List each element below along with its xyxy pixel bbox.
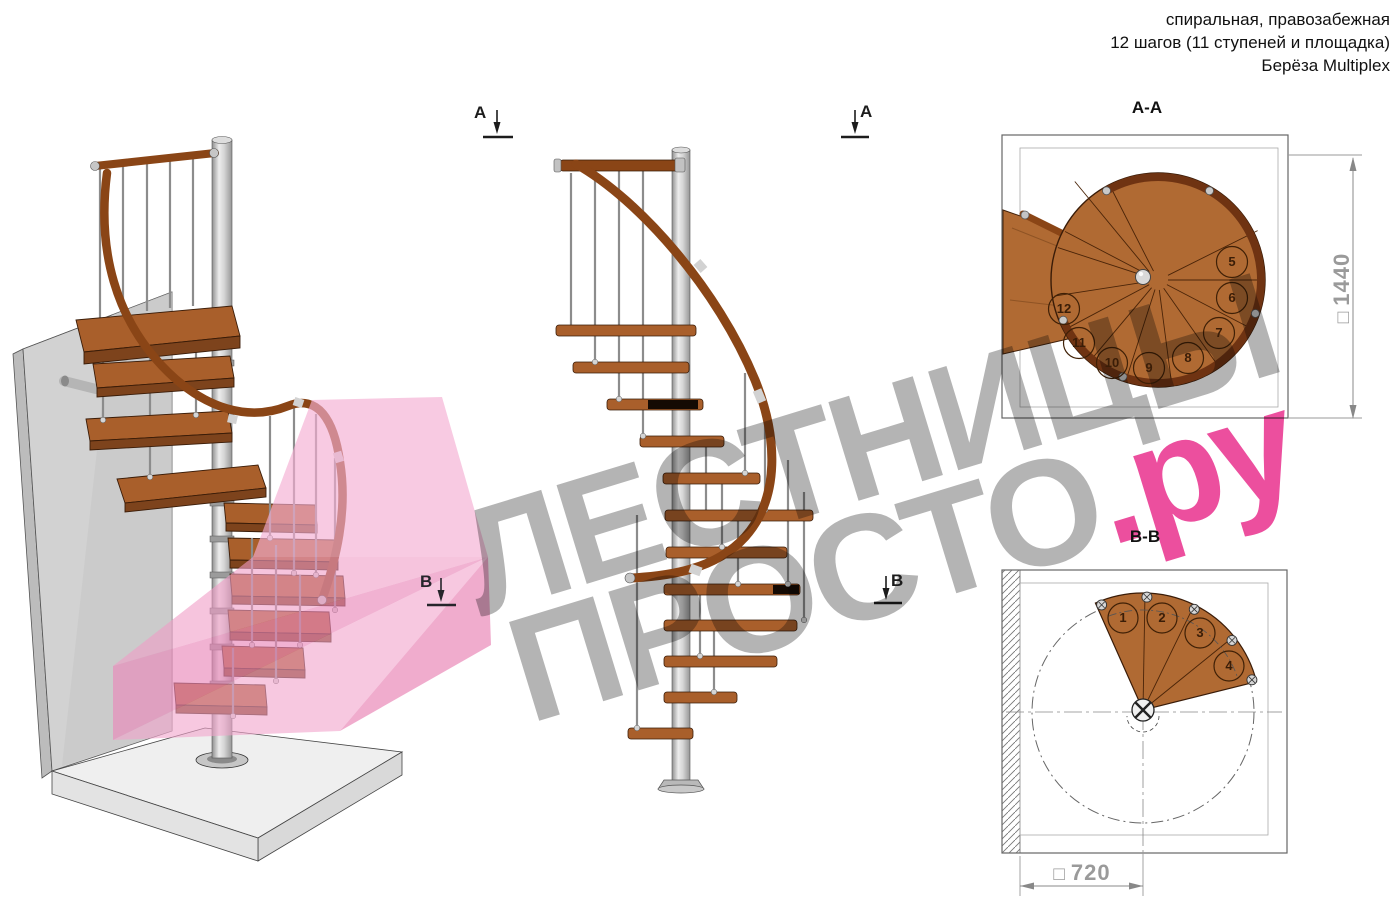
aa-step-number: 6: [1220, 286, 1244, 310]
aa-step-number: 10: [1100, 351, 1124, 375]
handrail-end-cap: [625, 573, 635, 583]
bb-step-number: 1: [1111, 606, 1135, 630]
aa-step-number: 8: [1176, 346, 1200, 370]
rail-cap: [554, 159, 561, 172]
bb-step-number: 4: [1217, 654, 1241, 678]
bb-dimension-text: □720: [1022, 860, 1142, 886]
tread-shadow: [773, 585, 799, 594]
marker-letter-b-left: В: [420, 572, 432, 592]
aa-step-number: 12: [1052, 297, 1076, 321]
bb-step-number: 2: [1150, 606, 1174, 630]
title-line-material: Берёза Multiplex: [1110, 54, 1390, 77]
rail-cap: [210, 149, 219, 158]
section-arrow-icon: [883, 588, 890, 600]
plan-bb-view: [1002, 570, 1287, 896]
title-line-type: спиральная, правозабежная: [1110, 8, 1390, 31]
handrail-end-cap: [1103, 187, 1111, 195]
aa-center-ball-highlight: [1139, 272, 1143, 276]
aa-dimension-text: □1440: [1329, 218, 1355, 358]
section-arrow-icon: [494, 122, 501, 134]
wall-bracket-cap: [61, 376, 69, 387]
bb-section-label: В-В: [1097, 527, 1193, 547]
section-marker-a-left: [483, 110, 513, 137]
marker-letter-b-right: В: [891, 571, 903, 591]
aa-center-ball: [1136, 270, 1151, 285]
pole-base-plate: [658, 785, 704, 793]
square-symbol-icon: □: [1333, 311, 1354, 323]
technical-drawing-canvas: [0, 0, 1400, 923]
title-line-steps: 12 шагов (11 ступеней и площадка): [1110, 31, 1390, 54]
aa-step-number: 5: [1220, 250, 1244, 274]
elevation-joints: [592, 359, 807, 731]
section-arrow-icon: [852, 122, 859, 134]
marker-letter-a-left: А: [474, 103, 486, 123]
title-block: спиральная, правозабежная 12 шагов (11 с…: [1110, 8, 1390, 77]
pole-top: [672, 147, 690, 153]
pole-top-cap: [212, 137, 232, 144]
elevation-view: [483, 110, 902, 793]
aa-step-number: 9: [1137, 356, 1161, 380]
drawing-page: ЛЕСТНИЦЫ ПРОСТО.ру спиральная, правозабе…: [0, 0, 1400, 923]
tread-shadow: [648, 400, 698, 409]
stair-3d-view: [13, 137, 491, 862]
aa-step-number: 11: [1067, 331, 1091, 355]
square-symbol-icon: □: [1053, 864, 1065, 885]
rail-cap: [675, 158, 685, 172]
rail-cap: [1021, 211, 1029, 219]
aa-section-label: А-А: [1099, 98, 1195, 118]
rail-cap: [91, 162, 100, 171]
landing-rail-3d: [95, 153, 215, 166]
bb-wall-hatch: [1002, 570, 1020, 853]
plan-aa-view: [1002, 135, 1362, 419]
bb-step-number: 3: [1188, 621, 1212, 645]
marker-letter-a-right: А: [860, 102, 872, 122]
aa-step-number: 7: [1207, 321, 1231, 345]
